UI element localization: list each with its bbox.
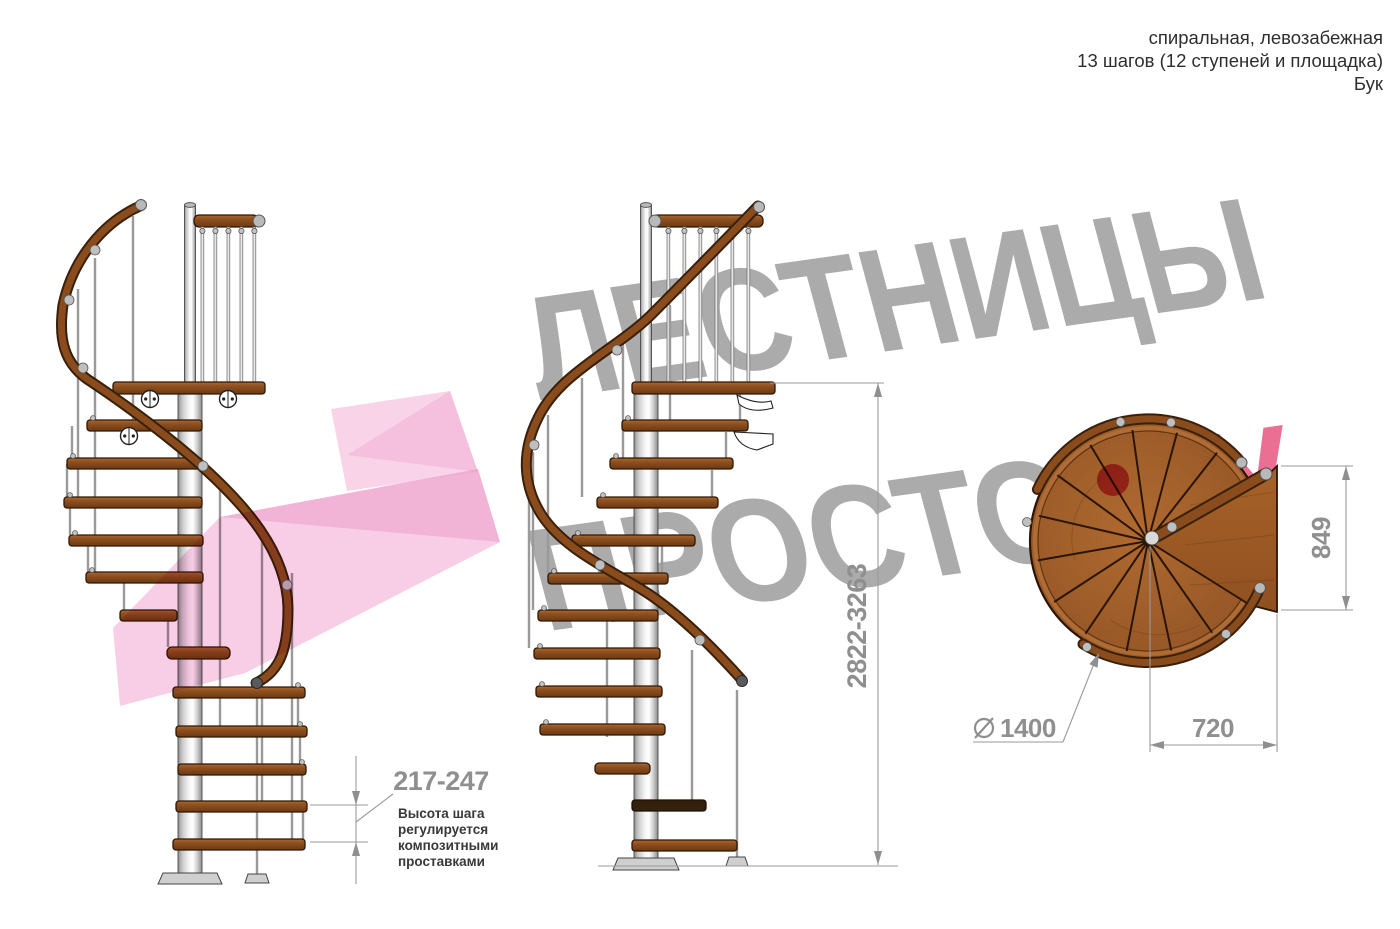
annotation-line1: Высота шага [398,806,485,821]
dimension-diameter: 1400 [973,653,1099,743]
annotation-line2: регулируется [398,822,488,837]
center-platform-step [632,382,775,394]
title-line3: Бук [1354,73,1384,94]
platform-width-value: 720 [1192,713,1234,743]
platform-depth-value: 849 [1306,517,1336,559]
title-line1: спиральная, левозабежная [1149,27,1383,48]
center-pole-upper [641,205,652,385]
dimension-step-height: 217-247 Высота шага регулируется компози… [310,756,498,884]
watermark-line1: ЛЕСТНИЦЫ [505,168,1281,431]
title-line2: 13 шагов (12 ступеней и площадка) [1077,50,1383,71]
annotation-line4: проставками [398,854,485,869]
drawing-canvas: ЛЕСТНИЦЫ ПРОСТО РУ [0,0,1400,929]
annotation-line3: композитными [398,838,498,853]
left-top-balusters [200,227,257,383]
left-base-flange [158,873,222,884]
diameter-symbol [975,718,993,738]
center-base-flange [613,858,679,870]
header-title: спиральная, левозабежная 13 шагов (12 ст… [1077,27,1384,94]
left-platform-step [113,382,265,394]
step-height-annotation: Высота шага регулируется композитными пр… [398,806,498,869]
plan-center-post [1145,531,1159,545]
total-height-value: 2822-3263 [842,563,872,688]
left-pole-upper [185,205,196,385]
step-height-value: 217-247 [393,766,489,796]
diameter-value: 1400 [1000,713,1056,743]
watermark-dot [1097,464,1129,496]
left-top-rail [194,215,258,227]
spiral-staircase-technical-drawing: ЛЕСТНИЦЫ ПРОСТО РУ [0,0,1400,929]
